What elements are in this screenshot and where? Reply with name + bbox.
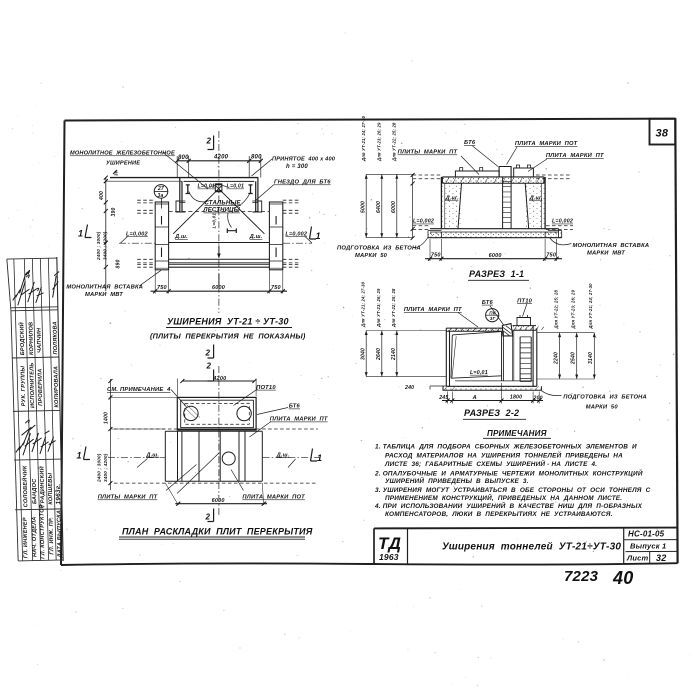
svg-text:Д.ш.: Д.ш.	[529, 196, 543, 202]
svg-text:2: 2	[206, 137, 212, 146]
svg-text:890: 890	[116, 260, 122, 269]
svg-text:L=0,002: L=0,002	[126, 231, 148, 237]
svg-text:3Г: 3Г	[490, 316, 496, 321]
svg-text:1: 1	[317, 453, 322, 463]
svg-text:БТ6: БТ6	[289, 404, 301, 410]
svg-text:ПЛИТЫ МАРКИ ПТ: ПЛИТЫ МАРКИ ПТ	[98, 495, 158, 501]
svg-text:2240: 2240	[554, 352, 560, 365]
svg-text:3а: 3а	[158, 193, 164, 199]
svg-text:ПОЛЯКОВА: ПОЛЯКОВА	[52, 321, 59, 355]
svg-text:2400 ; 3000): 2400 ; 3000)	[96, 231, 101, 261]
svg-text:1400: 1400	[104, 412, 110, 424]
svg-text:МОНОЛИТНАЯ ВСТАВКА: МОНОЛИТНАЯ ВСТАВКА	[573, 243, 650, 249]
svg-text:КОРНИЛОВ: КОРНИЛОВ	[28, 322, 35, 355]
svg-text:ГЛ. КОНСТРУКТОР: ГЛ. КОНСТРУКТОР	[39, 504, 46, 559]
svg-text:390: 390	[111, 208, 117, 217]
svg-text:ПЛИТА МАРКИ ПОТ: ПЛИТА МАРКИ ПОТ	[515, 141, 578, 147]
svg-text:БТ6: БТ6	[482, 300, 494, 306]
svg-text:ПЛИТА МАРКИ ПТ: ПЛИТА МАРКИ ПТ	[270, 417, 328, 423]
svg-text:НАЧ. ОТДЕЛА: НАЧ. ОТДЕЛА	[32, 516, 39, 557]
svg-text:1: 1	[316, 231, 321, 241]
svg-text:2. ОПАЛУБОЧНЫЕ И АРМАТУРНЫЕ: 2. ОПАЛУБОЧНЫЕ И АРМАТУРНЫЕ ЧЕРТЕЖИ МОНО…	[374, 468, 643, 477]
svg-text:2540: 2540	[571, 352, 577, 365]
svg-text:Выпуск 1: Выпуск 1	[630, 542, 666, 551]
svg-text:Для УТ-23; 26; 29: Для УТ-23; 26; 29	[571, 289, 576, 329]
svg-text:L=0,01: L=0,01	[227, 184, 245, 190]
svg-text:1963г.: 1963г.	[55, 484, 62, 505]
svg-text:ГЛ. ИНЖ. ПР.: ГЛ. ИНЖ. ПР.	[49, 517, 56, 555]
svg-text:1963: 1963	[379, 552, 399, 562]
svg-text:УШИРЕНИЙ ПРИВЕДЕНЫ В ВЫПУСК: УШИРЕНИЙ ПРИВЕДЕНЫ В ВЫПУСКЕ 3.	[385, 476, 529, 485]
svg-text:3400 ; 4200): 3400 ; 4200)	[103, 231, 108, 260]
svg-text:УШИРЕНИЯ УТ-21 ÷ УТ-30: УШИРЕНИЯ УТ-21 ÷ УТ-30	[167, 317, 289, 327]
svg-text:3140: 3140	[588, 352, 594, 364]
svg-text:30: 30	[114, 170, 119, 176]
svg-text:1800: 1800	[510, 395, 522, 401]
svg-text:А: А	[472, 395, 477, 401]
svg-text:4. ПРИ ИСПОЛЬЗОВАНИИ УШИРЕНИ: 4. ПРИ ИСПОЛЬЗОВАНИИ УШИРЕНИЙ В КАЧЕСТВЕ…	[374, 501, 643, 510]
svg-text:ТД: ТД	[378, 534, 401, 553]
svg-text:800: 800	[251, 155, 262, 161]
svg-text:КОПИРОВАЛА: КОПИРОВАЛА	[53, 366, 60, 408]
svg-text:Для УТ-21; 24; 27-30: Для УТ-21; 24; 27-30	[361, 115, 366, 162]
svg-text:БАНДОС: БАНДОС	[32, 478, 39, 504]
svg-text:2: 2	[206, 362, 212, 371]
svg-text:6000: 6000	[212, 498, 225, 504]
svg-text:ЧАПЧИН: ЧАПЧИН	[37, 327, 44, 353]
svg-text:ГНЕЗДО ДЛЯ БТ6: ГНЕЗДО ДЛЯ БТ6	[274, 180, 331, 186]
svg-text:СТАЛЬНЫЕ: СТАЛЬНЫЕ	[205, 200, 242, 206]
svg-text:4200: 4200	[213, 155, 229, 161]
svg-text:ГЛ. ИНЖЕНЕР: ГЛ. ИНЖЕНЕР	[23, 517, 30, 558]
svg-text:h = 300: h = 300	[286, 164, 308, 170]
svg-text:РАЗРЕЗ 1-1: РАЗРЕЗ 1-1	[469, 269, 524, 279]
svg-text:L=0,002: L=0,002	[285, 231, 307, 237]
svg-text:МОНОЛИТНОЕ ЖЕЛЕЗОБЕТОННОЕ: МОНОЛИТНОЕ ЖЕЛЕЗОБЕТОННОЕ	[70, 151, 175, 157]
svg-text:МОНОЛИТНАЯ ВСТАВКА: МОНОЛИТНАЯ ВСТАВКА	[66, 284, 143, 290]
svg-text:Для УТ-22; 25; 28: Для УТ-22; 25; 28	[391, 288, 396, 328]
svg-text:Для УТ-21; 24; 27-30: Для УТ-21; 24; 27-30	[588, 283, 593, 330]
svg-text:ПРИМЕЧАНИЯ: ПРИМЕЧАНИЯ	[487, 429, 547, 438]
svg-text:1. ТАБЛИЦА ДЛЯ ПОДБОРА СБОР: 1. ТАБЛИЦА ДЛЯ ПОДБОРА СБОРНЫХ ЖЕЛЕЗОБЕТ…	[375, 444, 637, 451]
svg-text:ПОДГОТОВКА ИЗ БЕТОНА: ПОДГОТОВКА ИЗ БЕТОНА	[337, 246, 421, 252]
svg-text:2400 ; 3000): 2400 ; 3000)	[97, 453, 102, 483]
svg-text:Уширения тоннелей УТ-21÷УТ-3: Уширения тоннелей УТ-21÷УТ-30	[442, 542, 621, 553]
svg-text:4200: 4200	[212, 376, 226, 382]
svg-text:L=0,01: L=0,01	[211, 213, 216, 229]
svg-text:200: 200	[533, 395, 543, 401]
svg-text:Д.ш.: Д.ш.	[276, 452, 290, 458]
svg-text:ДАТА ВЫПУСКА: ДАТА ВЫПУСКА	[56, 510, 63, 559]
svg-text:МАРКИ МВТ: МАРКИ МВТ	[587, 251, 625, 257]
svg-text:ПТ10: ПТ10	[517, 298, 533, 304]
svg-text:750: 750	[431, 252, 441, 258]
svg-text:750: 750	[271, 285, 281, 291]
svg-text:Для УТ-22; 25; 28: Для УТ-22; 25; 28	[392, 122, 397, 162]
svg-text:6000: 6000	[212, 285, 225, 291]
svg-text:ПЛАН РАСКЛАДКИ ПЛИТ ПЕРЕКРЫ: ПЛАН РАСКЛАДКИ ПЛИТ ПЕРЕКРЫТИЯ	[122, 526, 313, 536]
svg-text:ЛИСТЕ 36; ГАБАРИТНЫЕ СХЕМЫ: ЛИСТЕ 36; ГАБАРИТНЫЕ СХЕМЫ УШИРЕНИЙ - НА…	[384, 459, 597, 468]
svg-text:3. УШИРЕНИЯ МОГУТ УСТРАИВАТЬ: 3. УШИРЕНИЯ МОГУТ УСТРАИВАТЬСЯ В ОБЕ СТО…	[375, 487, 651, 494]
svg-text:Для УТ-23; 26; 29: Для УТ-23; 26; 29	[377, 122, 382, 162]
svg-text:38: 38	[656, 128, 669, 140]
svg-text:L=0,01: L=0,01	[198, 184, 216, 190]
svg-text:3400 ; 4200): 3400 ; 4200)	[103, 453, 108, 482]
svg-text:800: 800	[178, 155, 189, 161]
svg-text:2: 2	[205, 513, 211, 522]
svg-text:400: 400	[99, 191, 105, 201]
svg-text:32: 32	[656, 553, 666, 563]
svg-text:ПРОВЕРИЛА: ПРОВЕРИЛА	[37, 369, 44, 406]
svg-text:ПРИМЕНЕНИЕМ КОНСТРУКЦИЙ, ПРИ: ПРИМЕНЕНИЕМ КОНСТРУКЦИЙ, ПРИВЕДЕНЫХ НА Д…	[385, 493, 622, 502]
svg-text:КОПШЕВЫ: КОПШЕВЫ	[48, 472, 55, 504]
svg-text:750: 750	[157, 285, 167, 291]
svg-text:ПОДГОТОВКА ИЗ БЕТОНА: ПОДГОТОВКА ИЗ БЕТОНА	[563, 394, 647, 400]
svg-text:(ПЛИТЫ ПЕРЕКРЫТИЯ НЕ ПОКАЗА: (ПЛИТЫ ПЕРЕКРЫТИЯ НЕ ПОКАЗАНЫ)	[150, 332, 306, 341]
svg-text:РАСХОД МАТЕРИАЛОВ НА УШИРЕН: РАСХОД МАТЕРИАЛОВ НА УШИРЕНИЯ ТОННЕЛЕЙ П…	[385, 450, 623, 459]
svg-text:СМ. ПРИМЕЧАНИЕ 4: СМ. ПРИМЕЧАНИЕ 4	[107, 387, 171, 393]
svg-text:Д.ш.: Д.ш.	[445, 196, 459, 202]
svg-text:Для УТ-22; 25; 28: Для УТ-22; 25; 28	[554, 289, 559, 329]
svg-text:МАРКИ 50: МАРКИ 50	[355, 253, 388, 259]
svg-text:ПЛИТЫ МАРКИ ПТ: ПЛИТЫ МАРКИ ПТ	[398, 150, 458, 156]
svg-text:ПОТ10: ПОТ10	[256, 385, 276, 391]
svg-text:РУК. ГРУППЫ: РУК. ГРУППЫ	[20, 366, 27, 407]
svg-text:БТ6: БТ6	[464, 140, 476, 146]
svg-text:Д.ш.: Д.ш.	[249, 234, 263, 240]
svg-text:УШИРЕНИЕ: УШИРЕНИЕ	[106, 161, 140, 167]
svg-text:6400: 6400	[376, 201, 382, 213]
svg-text:ИСПОЛНИТЕЛЬ: ИСПОЛНИТЕЛЬ	[29, 363, 36, 409]
svg-text:2140: 2140	[391, 348, 397, 361]
svg-text:МАРКИ 50: МАРКИ 50	[586, 404, 619, 410]
svg-text:240: 240	[404, 385, 414, 391]
svg-text:1: 1	[77, 451, 82, 461]
svg-text:L=0,01: L=0,01	[470, 370, 488, 376]
svg-text:245: 245	[438, 395, 448, 401]
svg-text:МАРКИ МВТ: МАРКИ МВТ	[85, 292, 123, 298]
svg-text:РАЗРЕЗ 2-2: РАЗРЕЗ 2-2	[464, 408, 519, 418]
svg-text:2640: 2640	[376, 348, 382, 361]
svg-text:Лист: Лист	[626, 554, 649, 563]
svg-text:750: 750	[546, 252, 556, 258]
svg-text:L=0,002: L=0,002	[552, 219, 573, 225]
svg-text:ЛЕСТНИЦЫ: ЛЕСТНИЦЫ	[202, 208, 240, 214]
svg-text:1: 1	[78, 229, 83, 239]
svg-text:7223: 7223	[564, 568, 599, 585]
svg-text:НС-01-05: НС-01-05	[628, 530, 665, 539]
svg-text:ПЛИТА МАРКИ ПОТ: ПЛИТА МАРКИ ПОТ	[242, 495, 305, 501]
svg-text:Для УТ-21; 24; 27-30: Для УТ-21; 24; 27-30	[361, 281, 366, 328]
svg-text:3040: 3040	[361, 348, 367, 360]
svg-text:ПРИНЯТОЕ 400 х 400: ПРИНЯТОЕ 400 х 400	[272, 157, 336, 163]
svg-text:L=0,002: L=0,002	[413, 219, 434, 225]
svg-text:Д.ш.: Д.ш.	[174, 234, 188, 240]
svg-text:40: 40	[612, 568, 633, 588]
svg-text:КОМПЕНСАТОРОВ, ЛЮКИ В ПЕРЕК: КОМПЕНСАТОРОВ, ЛЮКИ В ПЕРЕКРЫТИЯХ НЕ УСТ…	[385, 511, 613, 518]
svg-text:Д.ш.: Д.ш.	[145, 452, 159, 458]
svg-text:2: 2	[205, 349, 211, 358]
svg-text:27: 27	[157, 186, 164, 192]
svg-text:ПЛИТА МАРКИ ПТ: ПЛИТА МАРКИ ПТ	[546, 153, 604, 159]
svg-text:6000: 6000	[391, 201, 397, 213]
svg-text:ПЛИТА МАРКИ ПТ: ПЛИТА МАРКИ ПТ	[404, 307, 462, 313]
svg-text:Для УТ-23; 26; 29: Для УТ-23; 26; 29	[376, 288, 381, 328]
svg-text:5000: 5000	[361, 201, 367, 213]
svg-text:6000: 6000	[489, 253, 502, 259]
